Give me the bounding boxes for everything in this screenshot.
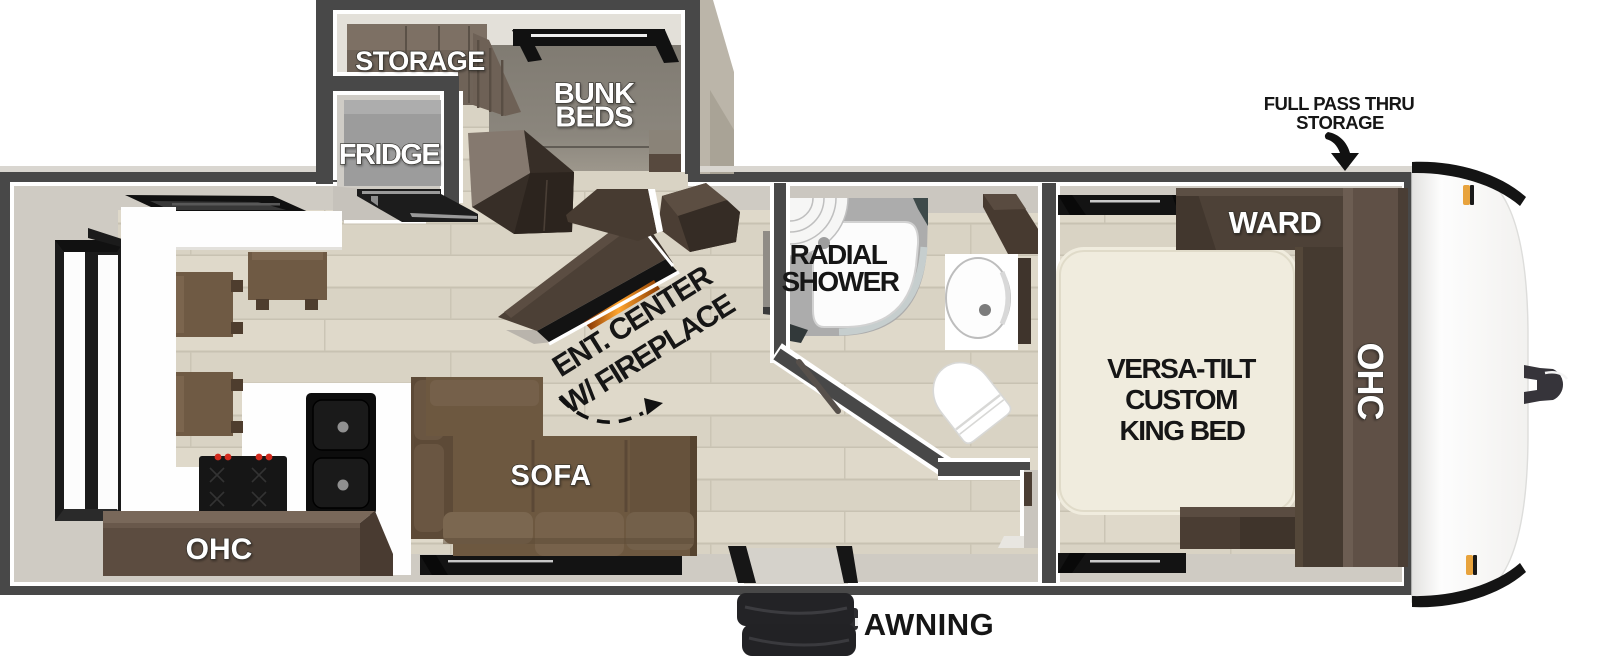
- svg-text:SOFA: SOFA: [511, 460, 592, 492]
- svg-text:FULL PASS THRU: FULL PASS THRU: [1264, 93, 1415, 114]
- svg-text:WARD: WARD: [1229, 205, 1322, 240]
- svg-text:VERSA-TILT: VERSA-TILT: [1107, 353, 1256, 384]
- svg-text:FRIDGE: FRIDGE: [339, 139, 441, 171]
- svg-text:SHOWER: SHOWER: [782, 266, 900, 297]
- svg-text:AWNING: AWNING: [864, 607, 994, 642]
- svg-text:CUSTOM: CUSTOM: [1125, 384, 1237, 415]
- svg-text:BEDS: BEDS: [555, 102, 633, 134]
- svg-text:KING BED: KING BED: [1120, 415, 1246, 446]
- svg-text:STORAGE: STORAGE: [355, 46, 485, 76]
- svg-text:OHC: OHC: [1350, 343, 1391, 421]
- svg-text:STORAGE: STORAGE: [1296, 112, 1384, 133]
- svg-text:OHC: OHC: [186, 533, 253, 566]
